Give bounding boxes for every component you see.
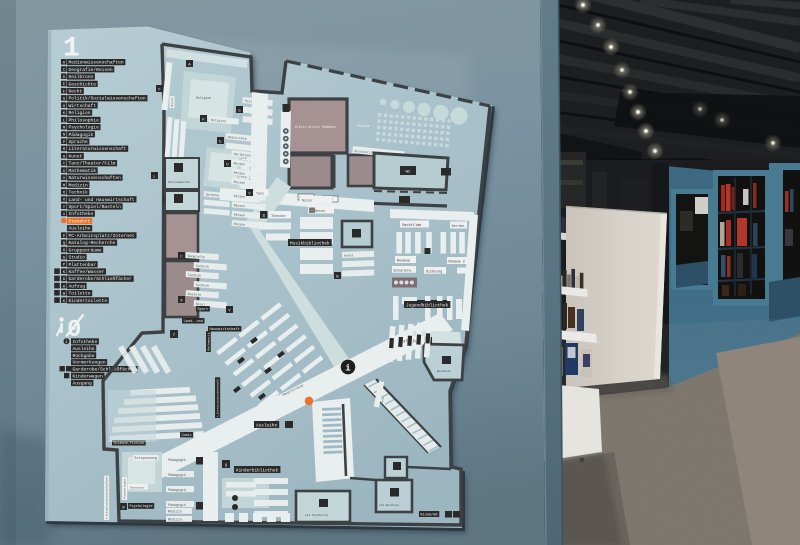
svg-text:Katalog-Recherche: Katalog-Recherche xyxy=(69,240,116,246)
svg-text:Sachfilme: Sachfilme xyxy=(402,223,421,228)
svg-text:Schreibwerkst.: Schreibwerkst. xyxy=(168,180,192,184)
svg-text:Bestände: Bestände xyxy=(437,369,451,373)
svg-text:Kinderbibliothek: Kinderbibliothek xyxy=(236,468,279,473)
svg-text:Gruppenräume: Gruppenräume xyxy=(69,247,102,253)
svg-text:Pädagogik: Pädagogik xyxy=(69,132,94,138)
svg-text:Podium: Podium xyxy=(357,124,369,129)
svg-text:Entspannung: Entspannung xyxy=(135,457,157,461)
svg-text:Psychologie: Psychologie xyxy=(69,125,100,131)
svg-text:Romane 2: Romane 2 xyxy=(449,260,465,264)
svg-text:Standort: Standort xyxy=(69,218,91,224)
svg-text:Kunst: Kunst xyxy=(69,154,83,160)
svg-text:Mathematik: Mathematik xyxy=(206,332,210,350)
svg-text:Tanz/Theater/Film: Tanz/Theater/Film xyxy=(69,161,116,167)
svg-text:PC-Arbeitsplatz/Internet: PC-Arbeitsplatz/Internet xyxy=(69,233,135,239)
svg-text:Schuelerw.: Schuelerw. xyxy=(394,268,413,272)
svg-text:Tanz: Tanz xyxy=(256,192,264,196)
svg-text:i: i xyxy=(345,364,351,374)
svg-text:Naturwissenschaften: Naturwissenschaften xyxy=(69,175,122,181)
svg-text:Musikbibliothek: Musikbibliothek xyxy=(290,241,330,246)
svg-text:Rückgabe: Rückgabe xyxy=(73,353,95,359)
svg-text:Heilbronn: Heilbronn xyxy=(69,74,94,80)
svg-text:Kunst: Kunst xyxy=(344,253,354,257)
svg-text:Infotheke: Infotheke xyxy=(73,339,98,345)
svg-text:Sport: Sport xyxy=(198,307,209,312)
svg-text:Psychologie: Psychologie xyxy=(123,479,127,499)
svg-text:Comic: Comic xyxy=(182,433,192,438)
svg-text:Religion: Religion xyxy=(196,96,211,100)
svg-text:Mathematik: Mathematik xyxy=(69,168,97,174)
svg-text:Vormerkungen: Vormerkungen xyxy=(73,360,106,366)
svg-text:Philosophie: Philosophie xyxy=(69,117,100,123)
svg-text:Medizin: Medizin xyxy=(69,182,89,188)
svg-text:Politik/Sozialwissenschaften: Politik/Sozialwissenschaften xyxy=(69,96,146,102)
svg-text:Kleist Archiv Sembdner: Kleist Archiv Sembdner xyxy=(295,125,337,129)
svg-text:Kaffee/Wasser: Kaffee/Wasser xyxy=(69,269,105,275)
svg-text:Ausleihe: Ausleihe xyxy=(69,226,91,232)
svg-text:Psychologie: Psychologie xyxy=(130,504,153,509)
svg-text:WC: WC xyxy=(406,171,411,175)
svg-text:Dichtung: Dichtung xyxy=(426,269,442,274)
svg-text:Geschichte: Geschichte xyxy=(69,81,97,87)
svg-text:Noten: Noten xyxy=(302,199,312,203)
svg-text:Romane: Romane xyxy=(397,259,410,263)
svg-text:Pädagogik: Pädagogik xyxy=(168,473,186,477)
svg-text:Recht: Recht xyxy=(170,97,174,106)
svg-text:Geografie/Reisen: Geografie/Reisen xyxy=(69,67,113,73)
svg-text:Infotheke: Infotheke xyxy=(69,211,94,217)
svg-text:Fantasie: Fantasie xyxy=(130,485,145,489)
svg-text:Plattenbar: Plattenbar xyxy=(69,262,97,268)
svg-text:Garderobe/Schließfächer: Garderobe/Schließfächer xyxy=(69,276,133,282)
svg-text:Pädagogik: Pädagogik xyxy=(168,488,186,492)
svg-text:Studio: Studio xyxy=(69,255,86,261)
svg-text:Hauswirtschaft: Hauswirtschaft xyxy=(210,327,240,332)
svg-text:Theater: Theater xyxy=(271,214,286,219)
svg-text:Land- und Hauswirtschaft: Land- und Hauswirtschaft xyxy=(69,197,135,203)
svg-text:Toilette: Toilette xyxy=(69,291,91,297)
svg-text:Ausleihe: Ausleihe xyxy=(256,423,277,428)
svg-text:Pädagogik: Pädagogik xyxy=(168,503,186,507)
svg-text:KinderWC: KinderWC xyxy=(421,512,438,517)
svg-text:Noten: Noten xyxy=(315,210,325,214)
svg-text:Literaturwissenschaft: Literaturwissenschaft xyxy=(69,146,127,152)
svg-text:Aufzug: Aufzug xyxy=(69,283,86,289)
svg-text:Jugendbibliothek: Jugendbibliothek xyxy=(406,303,449,308)
svg-text:Ausgang: Ausgang xyxy=(73,381,93,387)
svg-text:Literaturwissenschaft: Literaturwissenschaft xyxy=(216,379,220,417)
svg-text:LiV Werkhaus: LiV Werkhaus xyxy=(379,503,399,507)
svg-text:Medizin: Medizin xyxy=(168,518,182,522)
svg-text:Religion: Religion xyxy=(69,110,91,116)
svg-text:Medizin: Medizin xyxy=(168,510,182,514)
svg-text:Literaturwissenschaften: Literaturwissenschaften xyxy=(105,477,109,519)
svg-text:Kinderwagen: Kinderwagen xyxy=(73,374,104,380)
svg-text:Lik Konferenz: Lik Konferenz xyxy=(305,513,329,517)
svg-text:Spiel: Spiel xyxy=(196,302,206,307)
svg-text:Serien: Serien xyxy=(452,224,465,229)
svg-text:Medienwissenschaften: Medienwissenschaften xyxy=(69,60,124,66)
svg-text:Sport/Spiel/Basteln: Sport/Spiel/Basteln xyxy=(69,204,122,210)
svg-text:Wirtschaft: Wirtschaft xyxy=(69,103,97,109)
svg-text:Recht: Recht xyxy=(69,89,83,95)
svg-text:Ausleihe: Ausleihe xyxy=(73,346,95,352)
svg-text:Pädagogik: Pädagogik xyxy=(168,458,186,462)
svg-text:Sprache: Sprache xyxy=(69,139,89,145)
svg-text:Land- und: Land- und xyxy=(184,319,203,324)
svg-text:Technik: Technik xyxy=(69,190,89,196)
svg-text:Garderobe/Schließfächer: Garderobe/Schließfächer xyxy=(73,367,137,373)
svg-text:Kindertoilette: Kindertoilette xyxy=(69,298,108,304)
